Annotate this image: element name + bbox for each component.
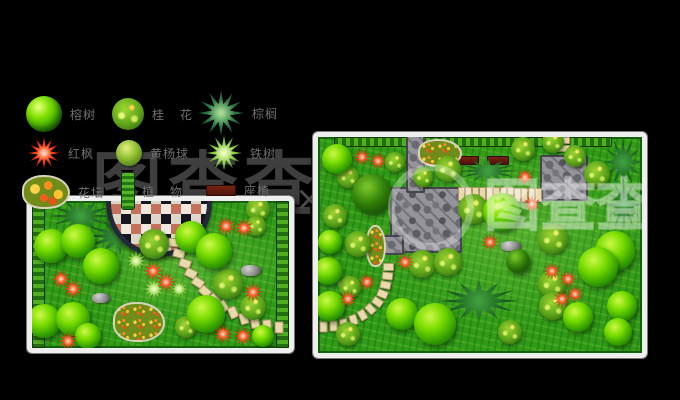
legend-item-red-maple: 红枫 [28, 137, 94, 169]
flower-bed [113, 302, 165, 342]
mottled-shrub [413, 167, 433, 187]
path-stone [521, 188, 528, 202]
path-stone [320, 322, 328, 333]
red-plant [233, 326, 253, 346]
legend-item-cycad: 铁树 [206, 135, 276, 171]
mottled-shrub [385, 152, 405, 172]
red-plant [516, 168, 534, 186]
mottled-shrub [336, 322, 360, 346]
red-plant [566, 285, 584, 303]
legend-item-mottled-tree: 桂 花 [112, 98, 198, 130]
legend-item-hedge-strip: 植 物 [122, 173, 188, 209]
red-plant [481, 233, 499, 251]
tree [604, 318, 632, 346]
path-stone [383, 263, 394, 271]
tree [252, 325, 274, 347]
legend-item-flowerbed: 花坛 [22, 175, 104, 209]
red-plant [353, 148, 371, 166]
path-stone [535, 188, 542, 202]
hedge-strip-icon [122, 173, 134, 209]
bamboo-cluster [606, 181, 642, 229]
tree [83, 248, 119, 284]
tree [318, 230, 342, 254]
left-plan [27, 196, 294, 353]
legend-label: 座椅 [244, 182, 270, 199]
dark-tree [506, 249, 530, 273]
legend-item-shrub-ball: 黄杨球 [116, 140, 189, 166]
mottled-shrub [408, 250, 436, 278]
mottled-shrub [434, 248, 462, 276]
legend-label: 铁树 [250, 145, 276, 162]
bench-icon [206, 185, 236, 196]
palm-icon [198, 90, 244, 136]
mottled-shrub [323, 204, 347, 228]
mottled-shrub [435, 156, 461, 182]
legend-label: 花坛 [78, 184, 104, 201]
flowerbed-icon [22, 175, 70, 209]
mottled-shrub [511, 137, 535, 161]
path-stone [226, 305, 239, 320]
tree [483, 193, 521, 231]
legend-label: 棕榈 [252, 105, 278, 122]
mottled-shrub [139, 229, 169, 259]
mottled-shrub [584, 161, 610, 187]
shrub-ball-icon [116, 140, 142, 166]
red-maple-icon [28, 137, 60, 169]
tree [607, 291, 637, 321]
tree [414, 303, 456, 345]
right-plan: 图查查 [313, 132, 647, 358]
left-plan-canvas [32, 201, 289, 348]
tree [563, 302, 593, 332]
path-stone [275, 322, 284, 334]
mottled-tree-icon [112, 98, 144, 130]
legend-item-bench: 座椅 [206, 182, 270, 199]
tree [196, 233, 232, 269]
mottled-shrub [538, 224, 568, 254]
mottled-shrub [498, 320, 522, 344]
mottled-shrub [564, 145, 586, 167]
tree [322, 144, 352, 174]
path-stone [382, 271, 394, 280]
legend-item-palm: 棕榈 [198, 90, 278, 136]
rock [92, 293, 110, 303]
legend-label: 黄杨球 [150, 145, 189, 162]
cycad-icon [206, 135, 242, 171]
legend-label: 红枫 [68, 145, 94, 162]
legend-label: 桂 花 [152, 106, 198, 123]
red-plant [369, 152, 387, 170]
legend-label: 榕树 [70, 106, 96, 123]
tree [75, 323, 101, 348]
dark-tree [352, 174, 392, 214]
legend-item-glossy-tree: 榕树 [26, 96, 96, 132]
mottled-shrub [345, 231, 371, 257]
right-plan-canvas: 图查查 [318, 137, 642, 353]
rock [241, 265, 261, 276]
mottled-shrub [213, 269, 243, 299]
legend-label: 植 物 [142, 183, 188, 200]
design-sheet: 图查查 × 榕树 桂 花 棕榈 红枫 黄杨球 铁树 花坛 [0, 0, 680, 400]
legend: 榕树 桂 花 棕榈 红枫 黄杨球 铁树 花坛 植 物 [0, 40, 310, 180]
tree [578, 247, 618, 287]
tree [318, 291, 345, 321]
glossy-tree-icon [26, 96, 62, 132]
